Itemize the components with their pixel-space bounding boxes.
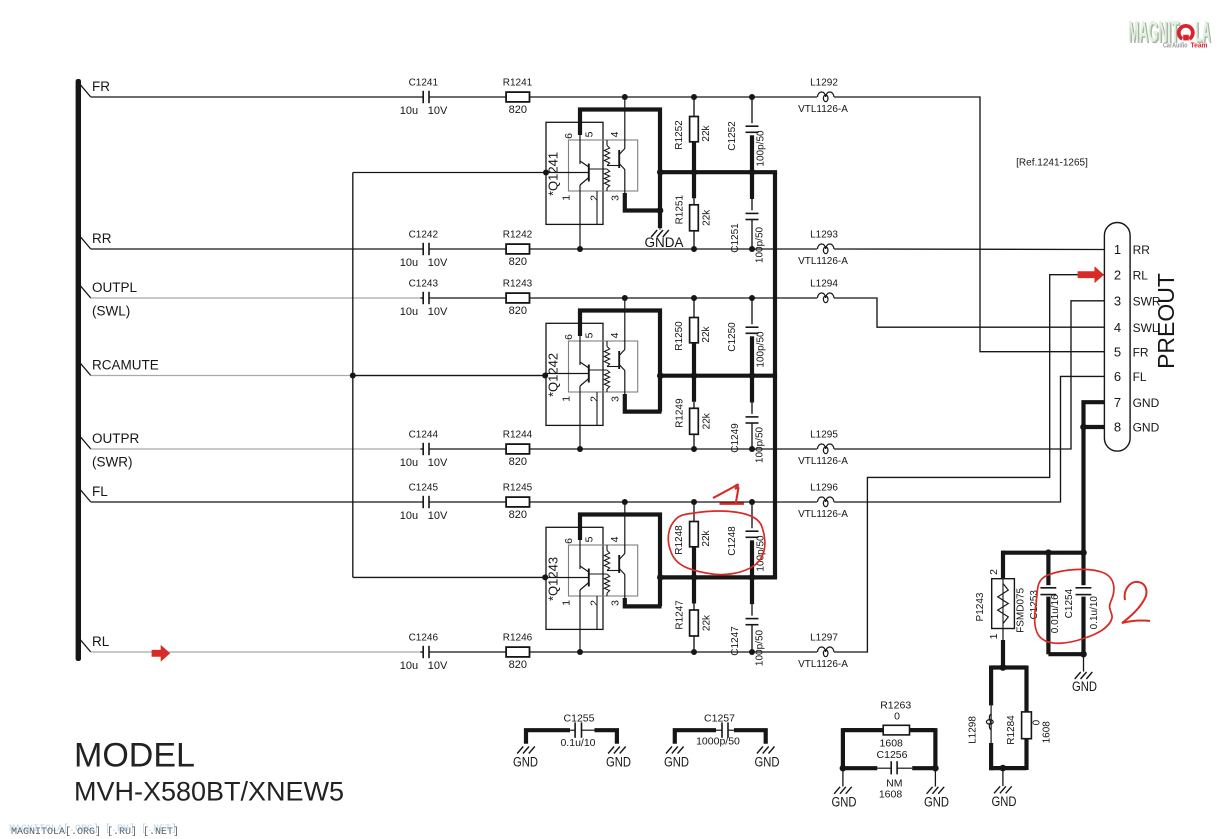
svg-text:R1247: R1247 xyxy=(675,600,686,630)
svg-text:1000p/50: 1000p/50 xyxy=(696,736,740,748)
svg-text:10u: 10u xyxy=(400,660,418,672)
svg-text:RCAMUTE: RCAMUTE xyxy=(92,358,159,373)
svg-text:MODEL: MODEL xyxy=(74,737,195,775)
svg-text:RR: RR xyxy=(1133,243,1151,257)
svg-text:6: 6 xyxy=(1114,369,1121,384)
svg-text:10u: 10u xyxy=(400,306,418,318)
svg-text:L1294: L1294 xyxy=(810,278,838,289)
svg-text:2: 2 xyxy=(988,569,1000,575)
svg-text:22k: 22k xyxy=(701,209,712,226)
svg-text:C1244: C1244 xyxy=(409,429,439,440)
svg-text:5: 5 xyxy=(1114,344,1121,359)
svg-text:C1254: C1254 xyxy=(1064,588,1075,618)
svg-text:7: 7 xyxy=(1114,395,1121,410)
svg-text:L1292: L1292 xyxy=(810,77,838,88)
svg-text:VTL1126-A: VTL1126-A xyxy=(798,256,848,267)
svg-text:MVH-X580BT/XNEW5: MVH-X580BT/XNEW5 xyxy=(74,777,344,807)
svg-text:100p/50: 100p/50 xyxy=(754,426,765,463)
svg-text:*Q1242: *Q1242 xyxy=(546,353,561,397)
svg-text:C1245: C1245 xyxy=(409,482,439,493)
svg-text:22k: 22k xyxy=(701,529,712,546)
svg-text:FL: FL xyxy=(1133,370,1147,384)
svg-text:10u: 10u xyxy=(400,457,418,469)
svg-text:P1243: P1243 xyxy=(975,592,986,621)
svg-text:6: 6 xyxy=(563,334,575,340)
svg-text:R1252: R1252 xyxy=(674,120,685,150)
svg-text:1608: 1608 xyxy=(1041,721,1052,744)
svg-text:C1248: C1248 xyxy=(727,526,738,556)
svg-text:5: 5 xyxy=(584,536,596,542)
svg-text:100p/50: 100p/50 xyxy=(754,226,765,263)
svg-text:820: 820 xyxy=(509,256,527,268)
svg-text:1: 1 xyxy=(561,195,573,201)
svg-text:GND: GND xyxy=(755,755,780,770)
svg-text:C1249: C1249 xyxy=(730,423,741,453)
svg-text:10V: 10V xyxy=(428,105,448,117)
svg-text:820: 820 xyxy=(509,456,527,468)
svg-text:C1241: C1241 xyxy=(409,77,439,88)
svg-text:GND: GND xyxy=(924,795,949,810)
svg-text:FSMD075: FSMD075 xyxy=(1016,587,1027,632)
svg-text:2: 2 xyxy=(589,195,601,201)
svg-text:0.1u/10: 0.1u/10 xyxy=(560,737,595,749)
svg-text:GND: GND xyxy=(1133,396,1160,410)
svg-text:4: 4 xyxy=(609,332,621,338)
svg-text:R1243: R1243 xyxy=(503,278,533,289)
svg-text:1: 1 xyxy=(988,633,1000,639)
svg-text:R1241: R1241 xyxy=(503,77,533,88)
svg-text:GNDA: GNDA xyxy=(644,235,683,250)
svg-text:L1296: L1296 xyxy=(810,482,838,493)
svg-text:C1252: C1252 xyxy=(727,121,738,151)
svg-text:L1297: L1297 xyxy=(810,632,838,643)
svg-text:CarAudio: CarAudio xyxy=(1163,42,1188,49)
svg-text:GND: GND xyxy=(1072,679,1097,694)
svg-text:10V: 10V xyxy=(428,510,448,522)
svg-text:100p/50: 100p/50 xyxy=(754,629,765,666)
svg-text:C1243: C1243 xyxy=(409,278,439,289)
svg-text:FR: FR xyxy=(1133,345,1149,359)
svg-text:FR: FR xyxy=(92,79,110,94)
svg-text:5: 5 xyxy=(584,131,596,137)
svg-text:FL: FL xyxy=(92,484,108,499)
svg-text:6: 6 xyxy=(563,133,575,139)
svg-text:820: 820 xyxy=(509,305,527,317)
svg-text:C1242: C1242 xyxy=(409,229,439,240)
svg-text:R1248: R1248 xyxy=(674,525,685,555)
svg-text:R1242: R1242 xyxy=(503,229,533,240)
svg-text:OUTPR: OUTPR xyxy=(92,431,140,446)
svg-text:(SWL): (SWL) xyxy=(92,304,130,319)
svg-text:2: 2 xyxy=(1114,267,1121,282)
svg-text:*Q1241: *Q1241 xyxy=(546,152,561,196)
svg-text:5: 5 xyxy=(584,332,596,338)
svg-text:1608: 1608 xyxy=(880,738,904,750)
svg-text:0.01u/16: 0.01u/16 xyxy=(1050,594,1061,633)
svg-text:VTL1126-A: VTL1126-A xyxy=(798,456,848,467)
svg-text:10V: 10V xyxy=(428,257,448,269)
svg-text:VTL1126-A: VTL1126-A xyxy=(798,104,848,115)
svg-text:GND: GND xyxy=(664,755,689,770)
svg-text:R1250: R1250 xyxy=(674,321,685,351)
svg-text:L1295: L1295 xyxy=(810,429,838,440)
svg-text:GND: GND xyxy=(513,755,538,770)
svg-text:Team: Team xyxy=(1191,42,1208,49)
svg-text:100p/50: 100p/50 xyxy=(756,130,767,167)
svg-text:MAGNITOLA[.ORG] [.RU] [.NET]: MAGNITOLA[.ORG] [.RU] [.NET] xyxy=(11,826,179,838)
svg-text:4: 4 xyxy=(1114,320,1121,335)
svg-text:0: 0 xyxy=(894,711,900,723)
svg-text:6: 6 xyxy=(563,538,575,544)
svg-text:R1244: R1244 xyxy=(503,429,533,440)
svg-text:C1256: C1256 xyxy=(877,749,908,761)
svg-text:10u: 10u xyxy=(400,105,418,117)
svg-text:PREOUT: PREOUT xyxy=(1153,273,1179,369)
svg-text:3: 3 xyxy=(1114,293,1121,308)
svg-text:C1246: C1246 xyxy=(409,632,439,643)
svg-text:22k: 22k xyxy=(701,325,712,342)
svg-text:RL: RL xyxy=(92,634,110,649)
svg-text:8: 8 xyxy=(1114,420,1121,435)
svg-text:[Ref.1241-1265]: [Ref.1241-1265] xyxy=(1016,158,1088,169)
svg-text:10V: 10V xyxy=(428,306,448,318)
svg-text:0.1u/10: 0.1u/10 xyxy=(1089,596,1100,630)
svg-text:C1255: C1255 xyxy=(564,713,595,725)
svg-text:R1245: R1245 xyxy=(503,482,533,493)
svg-text:OUTPL: OUTPL xyxy=(92,280,138,295)
svg-text:L1298: L1298 xyxy=(967,716,978,744)
svg-text:22k: 22k xyxy=(701,412,712,429)
svg-text:L1293: L1293 xyxy=(810,229,838,240)
svg-text:1: 1 xyxy=(1114,242,1121,257)
svg-text:22k: 22k xyxy=(701,124,712,141)
svg-text:C1250: C1250 xyxy=(727,322,738,352)
svg-text:GND: GND xyxy=(1133,421,1160,435)
svg-text:(SWR): (SWR) xyxy=(92,455,133,470)
svg-text:3: 3 xyxy=(610,396,622,402)
svg-text:R1246: R1246 xyxy=(503,632,533,643)
svg-text:820: 820 xyxy=(509,509,527,521)
svg-text:C1257: C1257 xyxy=(704,713,735,725)
svg-text:GND: GND xyxy=(992,794,1017,809)
svg-text:10V: 10V xyxy=(428,660,448,672)
svg-text:820: 820 xyxy=(509,104,527,116)
svg-text:2: 2 xyxy=(589,600,601,606)
svg-text:*Q1243: *Q1243 xyxy=(546,557,561,601)
svg-text:VTL1126-A: VTL1126-A xyxy=(798,659,848,670)
svg-text:2: 2 xyxy=(589,396,601,402)
svg-text:GND: GND xyxy=(832,795,857,810)
svg-text:100p/50: 100p/50 xyxy=(756,331,767,368)
svg-text:RR: RR xyxy=(92,231,112,246)
svg-text:VTL1126-A: VTL1126-A xyxy=(798,509,848,520)
svg-text:4: 4 xyxy=(609,536,621,542)
svg-text:10u: 10u xyxy=(400,510,418,522)
svg-text:R1284: R1284 xyxy=(1006,715,1017,745)
svg-text:3: 3 xyxy=(610,600,622,606)
svg-text:C1247: C1247 xyxy=(730,626,741,656)
svg-text:820: 820 xyxy=(509,659,527,671)
svg-text:3: 3 xyxy=(610,195,622,201)
svg-text:C1251: C1251 xyxy=(730,223,741,253)
svg-text:22k: 22k xyxy=(701,614,712,631)
svg-text:R1251: R1251 xyxy=(675,195,686,225)
svg-text:1: 1 xyxy=(561,600,573,606)
svg-text:1: 1 xyxy=(561,396,573,402)
svg-text:10u: 10u xyxy=(400,257,418,269)
svg-text:GND: GND xyxy=(606,755,631,770)
svg-text:RL: RL xyxy=(1133,268,1149,282)
svg-text:R1249: R1249 xyxy=(675,398,686,428)
svg-text:10V: 10V xyxy=(428,457,448,469)
svg-text:4: 4 xyxy=(609,131,621,137)
svg-text:1608: 1608 xyxy=(879,789,903,801)
